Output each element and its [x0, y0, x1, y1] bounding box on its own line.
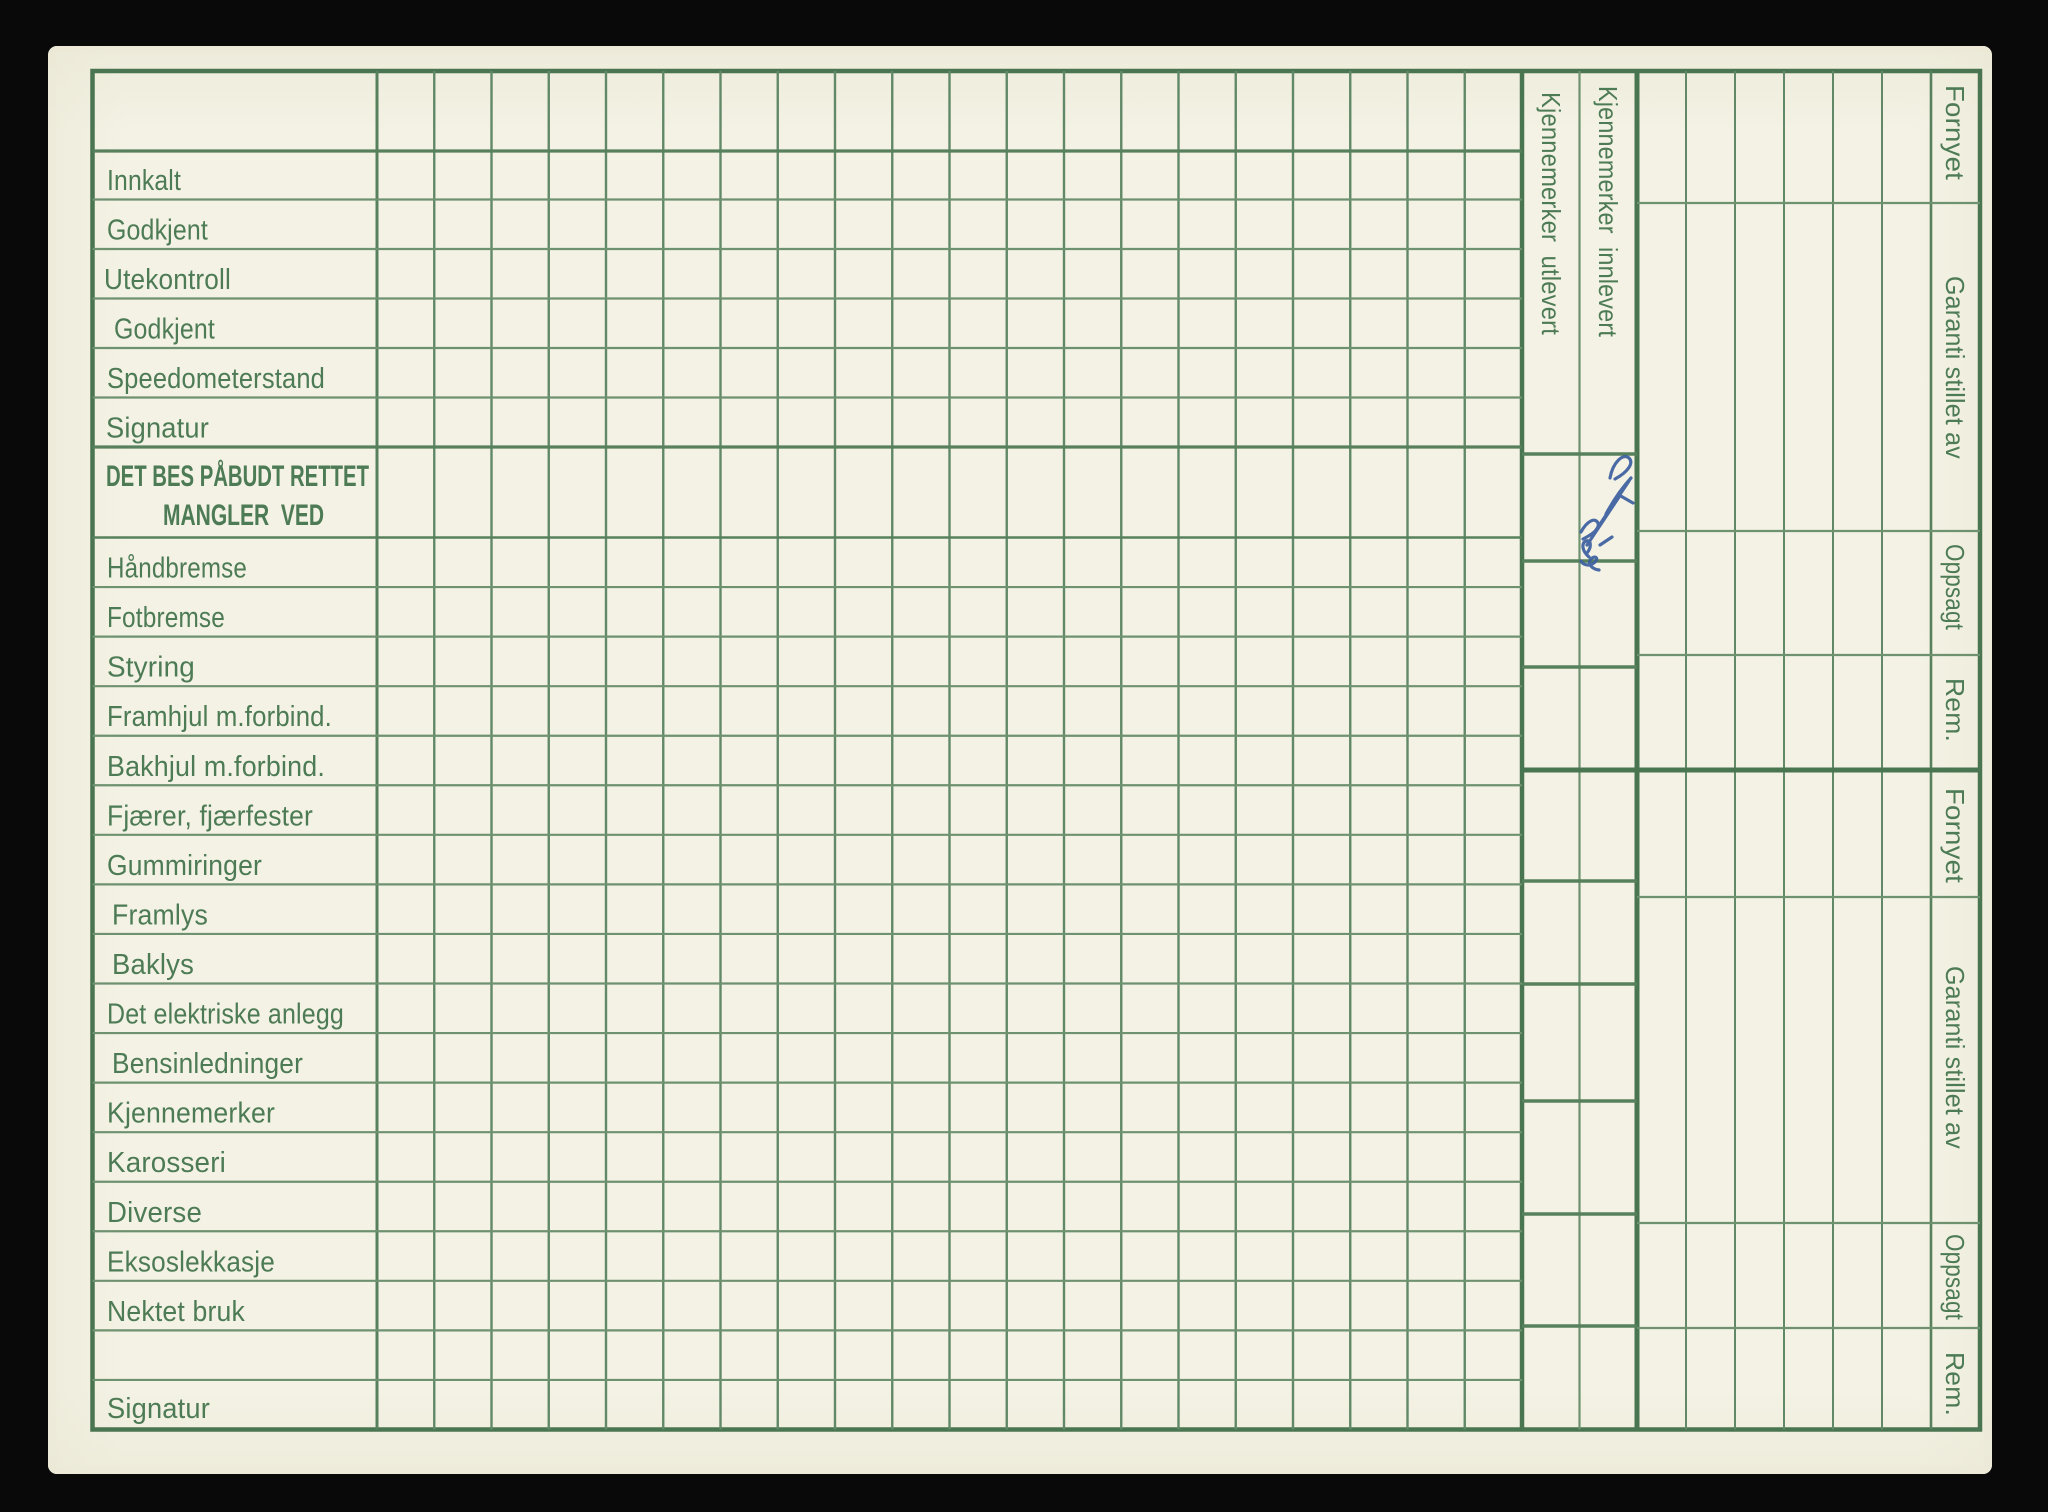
svg-text:Innkalt: Innkalt — [107, 165, 181, 197]
svg-text:Signatur: Signatur — [106, 413, 209, 445]
svg-text:Karosseri: Karosseri — [107, 1147, 226, 1179]
svg-text:Framhjul m.forbind.: Framhjul m.forbind. — [107, 701, 332, 733]
svg-text:Rem.: Rem. — [1940, 1352, 1970, 1416]
svg-text:Fjærer, fjærfester: Fjærer, fjærfester — [107, 800, 313, 832]
svg-text:Utekontroll: Utekontroll — [104, 264, 231, 296]
svg-text:Fotbremse: Fotbremse — [107, 602, 225, 634]
svg-text:Oppsagt: Oppsagt — [1940, 1234, 1970, 1320]
svg-text:Eksoslekkasje: Eksoslekkasje — [107, 1246, 275, 1278]
svg-text:Garanti stillet av: Garanti stillet av — [1940, 276, 1970, 459]
svg-text:Det elektriske anlegg: Det elektriske anlegg — [107, 999, 344, 1031]
svg-text:Godkjent: Godkjent — [107, 215, 208, 247]
svg-text:Speedometerstand: Speedometerstand — [107, 363, 325, 395]
svg-text:Rem.: Rem. — [1940, 678, 1970, 742]
svg-text:Godkjent: Godkjent — [114, 314, 215, 346]
svg-text:Fornyet: Fornyet — [1940, 788, 1970, 884]
svg-text:Oppsagt: Oppsagt — [1940, 544, 1970, 630]
svg-text:Nektet bruk: Nektet bruk — [107, 1296, 245, 1328]
svg-text:Kjennemerker utlevert: Kjennemerker utlevert — [1536, 92, 1566, 336]
svg-text:Baklys: Baklys — [112, 949, 194, 981]
svg-text:Diverse: Diverse — [107, 1197, 202, 1229]
svg-text:Kjennemerker innlevert: Kjennemerker innlevert — [1593, 86, 1623, 338]
svg-text:Fornyet: Fornyet — [1940, 85, 1970, 181]
svg-text:Bakhjul m.forbind.: Bakhjul m.forbind. — [107, 751, 325, 783]
svg-text:Bensinledninger: Bensinledninger — [112, 1048, 303, 1080]
svg-text:Kjennemerker: Kjennemerker — [107, 1098, 275, 1130]
svg-text:DET BES PÅBUDT RETTET: DET BES PÅBUDT RETTET — [106, 460, 369, 493]
svg-text:Styring: Styring — [107, 652, 195, 684]
svg-text:Gummiringer: Gummiringer — [107, 850, 262, 882]
svg-text:Håndbremse: Håndbremse — [107, 553, 247, 585]
svg-text:Garanti stillet av: Garanti stillet av — [1940, 966, 1970, 1149]
svg-text:MANGLER VED: MANGLER VED — [163, 499, 324, 532]
svg-text:Signatur: Signatur — [107, 1393, 210, 1425]
svg-text:Framlys: Framlys — [112, 899, 208, 931]
